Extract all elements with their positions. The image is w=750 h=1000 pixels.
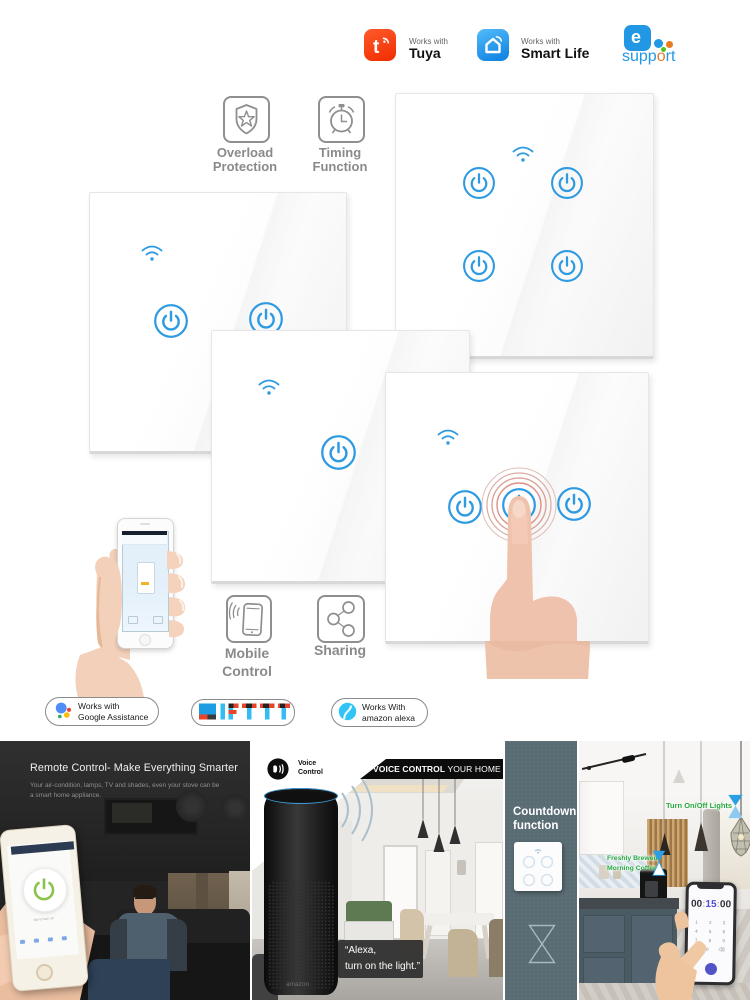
svg-text:t: t: [373, 37, 380, 58]
